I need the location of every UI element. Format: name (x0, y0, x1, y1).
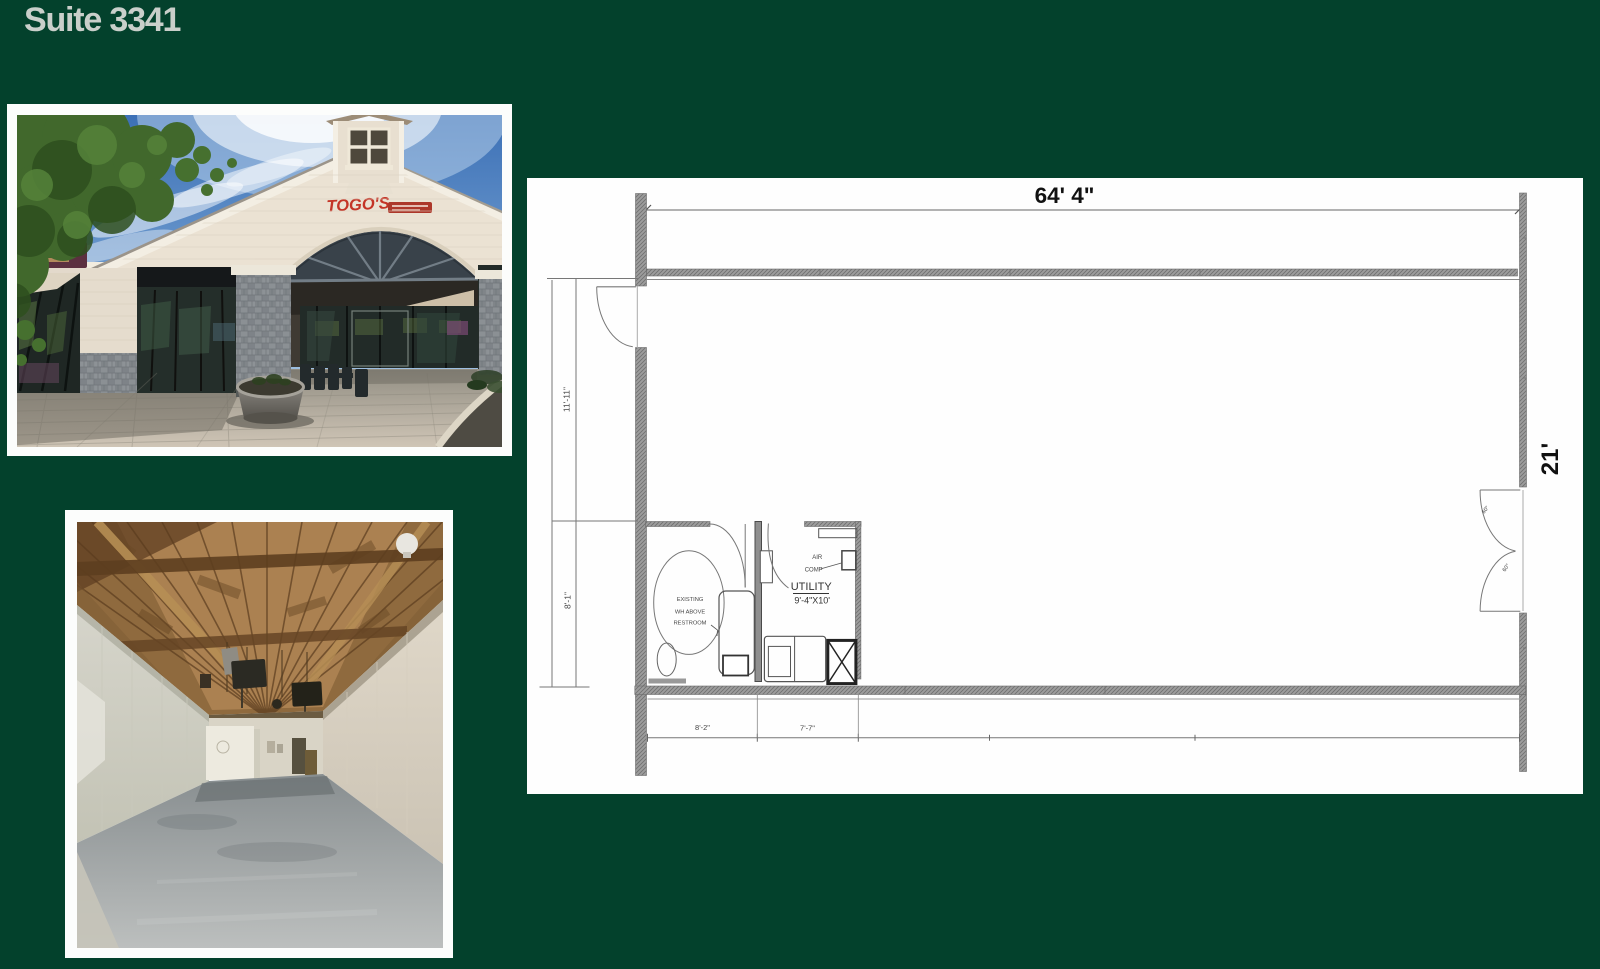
svg-text:8'-2": 8'-2" (695, 723, 710, 732)
svg-text:AIR: AIR (812, 555, 823, 561)
svg-text:COMP: COMP (805, 568, 823, 574)
svg-text:21': 21' (1537, 443, 1564, 475)
svg-text:UTILITY: UTILITY (791, 581, 833, 593)
svg-text:7'-7": 7'-7" (800, 724, 815, 733)
svg-text:EXISTING: EXISTING (677, 597, 704, 603)
svg-text:60°: 60° (1481, 505, 1491, 515)
svg-text:8'-1": 8'-1" (563, 592, 573, 609)
svg-text:60°: 60° (1502, 563, 1512, 573)
svg-text:WH ABOVE: WH ABOVE (675, 610, 706, 616)
svg-text:RESTROOM: RESTROOM (674, 621, 707, 627)
svg-text:11'-11": 11'-11" (562, 387, 572, 412)
svg-text:9'-4"X10': 9'-4"X10' (794, 596, 830, 606)
svg-text:TOGO'S: TOGO'S (326, 194, 390, 215)
svg-text:64' 4": 64' 4" (1035, 183, 1095, 208)
